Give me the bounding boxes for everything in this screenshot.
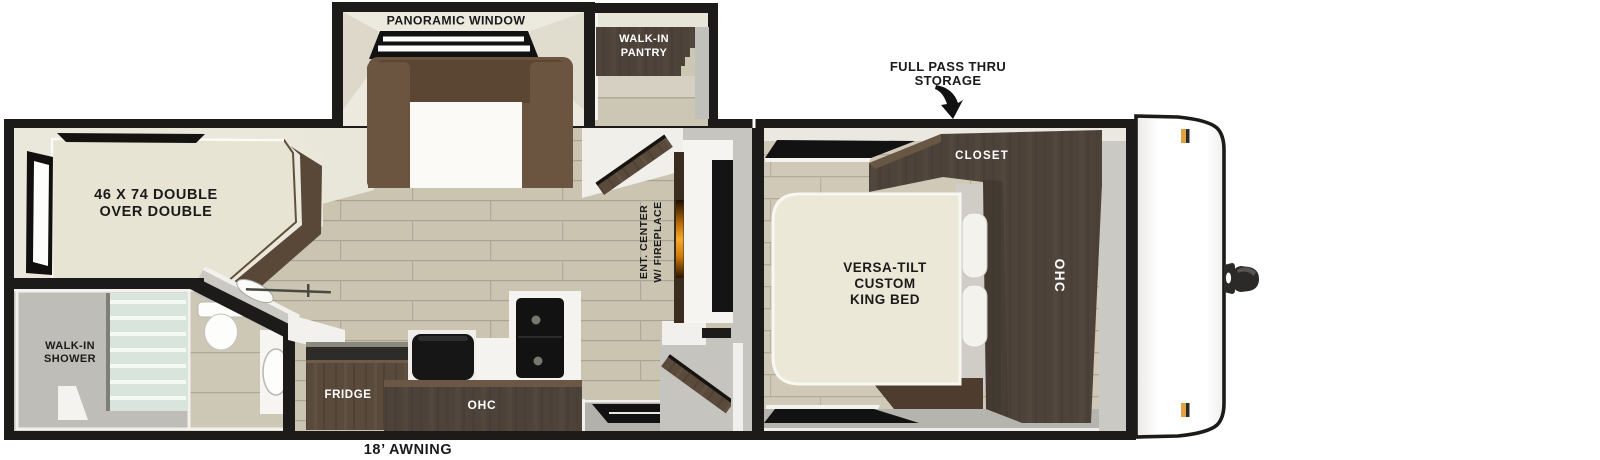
svg-text:KING BED: KING BED	[850, 292, 920, 307]
svg-text:W/ FIREPLACE: W/ FIREPLACE	[652, 201, 664, 282]
svg-text:FULL PASS THRU: FULL PASS THRU	[890, 59, 1006, 74]
svg-text:WALK-IN: WALK-IN	[619, 33, 669, 45]
svg-text:OHC: OHC	[1052, 259, 1067, 294]
svg-text:PANTRY: PANTRY	[621, 47, 668, 59]
svg-text:SHOWER: SHOWER	[44, 353, 96, 365]
svg-text:18’ AWNING: 18’ AWNING	[364, 442, 452, 458]
svg-text:OHC: OHC	[467, 398, 496, 412]
svg-text:STORAGE: STORAGE	[915, 73, 982, 88]
svg-text:ENT. CENTER: ENT. CENTER	[638, 205, 650, 279]
svg-text:WALK-IN: WALK-IN	[45, 340, 95, 352]
svg-text:46 X 74 DOUBLE: 46 X 74 DOUBLE	[94, 187, 218, 203]
svg-text:OVER DOUBLE: OVER DOUBLE	[100, 204, 213, 220]
svg-text:VERSA-TILT: VERSA-TILT	[843, 260, 927, 275]
svg-text:FRIDGE: FRIDGE	[324, 389, 371, 401]
svg-text:CLOSET: CLOSET	[955, 150, 1009, 162]
svg-text:PANORAMIC WINDOW: PANORAMIC WINDOW	[387, 14, 526, 28]
svg-text:CUSTOM: CUSTOM	[854, 276, 915, 291]
